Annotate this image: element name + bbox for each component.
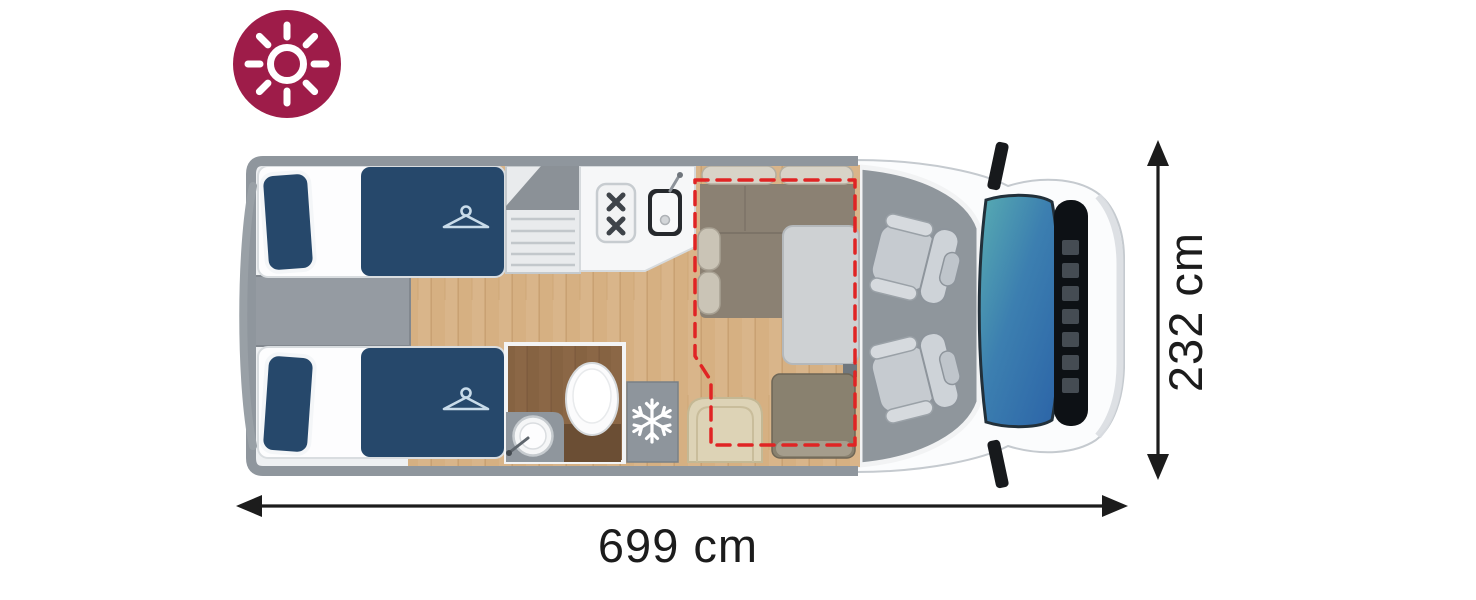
width-value: 232 cm [1159, 232, 1212, 392]
bed-pillow [261, 171, 316, 272]
habitation-section [243, 161, 860, 471]
arrowhead-left-icon [236, 495, 262, 517]
arrowhead-right-icon [1102, 495, 1128, 517]
bed-blanket [361, 167, 504, 276]
bed-rear-left [258, 166, 505, 277]
dimension-width: 232 cm [1147, 140, 1212, 480]
daylight-badge[interactable] [233, 10, 341, 118]
dimension-length: 699 cm [236, 495, 1128, 572]
bathroom-sink-icon [506, 412, 564, 462]
dinette-table [783, 226, 859, 364]
floorplan-canvas: 699 cm 232 cm [0, 0, 1476, 600]
arrowhead-down-icon [1147, 454, 1169, 480]
mirror-left-icon [987, 141, 1010, 191]
kitchen-block [580, 166, 695, 271]
cab-front-section [856, 141, 1124, 489]
cab-floor [860, 167, 979, 465]
bed-platform [252, 276, 410, 346]
dinette [688, 166, 859, 462]
toilet-icon [566, 363, 618, 435]
sofa-arm-cushion [698, 272, 720, 314]
wardrobe [506, 166, 580, 273]
dinette-chair [688, 398, 762, 462]
windshield [979, 195, 1059, 426]
sofa-arm-cushion [698, 228, 720, 270]
bathroom [506, 344, 624, 462]
bed-pillow [261, 353, 316, 454]
arrowhead-up-icon [1147, 140, 1169, 166]
stove-icon [597, 184, 635, 242]
floorplan-page: 699 cm 232 cm [0, 0, 1476, 600]
fridge [627, 382, 678, 462]
bed-rear-right [258, 347, 505, 458]
length-value: 699 cm [598, 519, 758, 572]
bed-blanket [361, 348, 504, 457]
hood-grille [1054, 200, 1088, 426]
